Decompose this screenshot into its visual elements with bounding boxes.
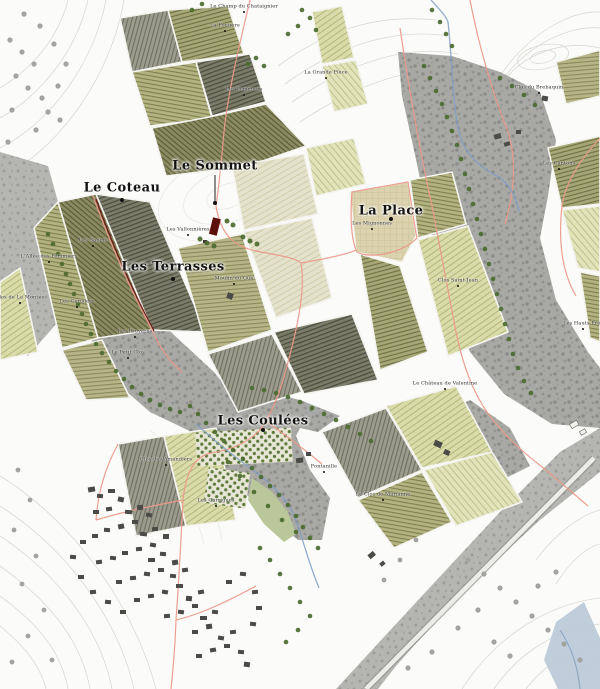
terroir-map: Le SommetLe CoteauLes TerrassesLa PlaceL…: [0, 0, 600, 689]
river: [544, 602, 600, 689]
sommet-building: [209, 217, 221, 235]
map-canvas: [0, 0, 600, 689]
la-place-plaza: [350, 182, 416, 262]
